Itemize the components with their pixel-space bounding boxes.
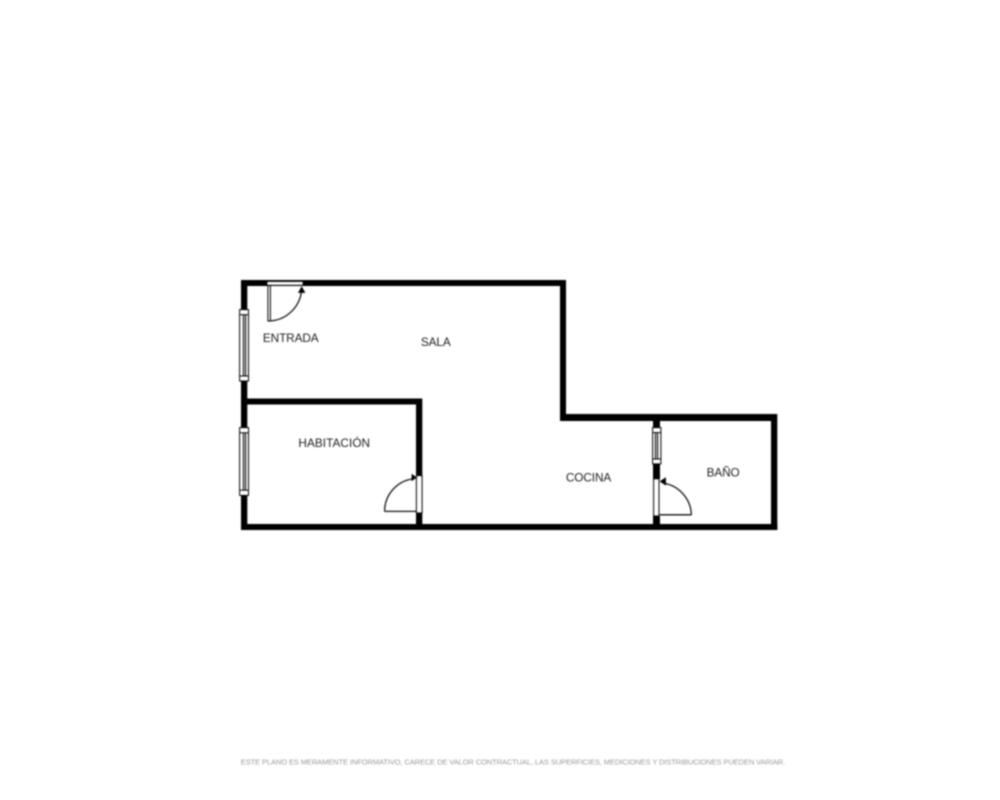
svg-text:SALA: SALA (421, 335, 451, 349)
svg-text:BAÑO: BAÑO (707, 466, 740, 480)
svg-text:ENTRADA: ENTRADA (263, 331, 319, 345)
svg-text:COCINA: COCINA (566, 470, 612, 484)
svg-text:ESTE PLANO ES MERAMENTE INFORM: ESTE PLANO ES MERAMENTE INFORMATIVO, CAR… (241, 757, 785, 766)
svg-text:HABITACIÓN: HABITACIÓN (298, 436, 370, 450)
